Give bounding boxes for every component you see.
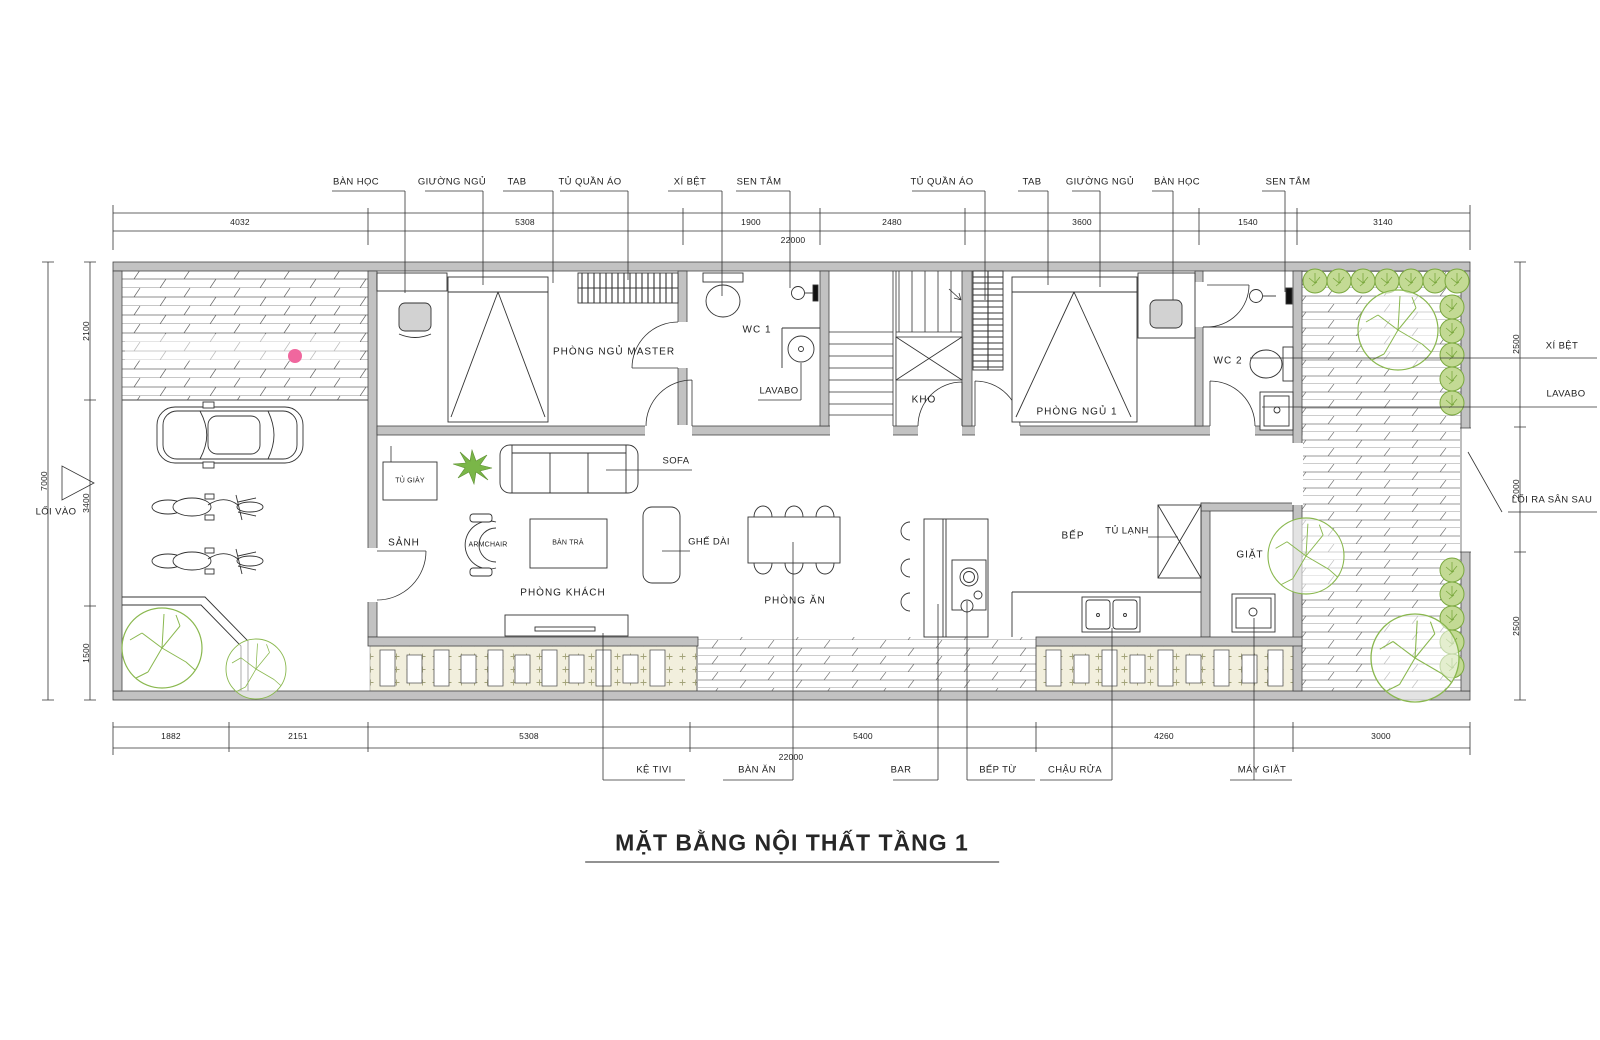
dim-top-3: 1900: [741, 217, 761, 227]
label-sofa: SOFA: [663, 456, 690, 467]
stepping-stones-right: [1046, 650, 1283, 686]
label-coffee-table: BÀN TRÀ: [552, 540, 584, 547]
room-kitchen: BẾP: [1061, 531, 1084, 542]
callout-bar: BAR: [891, 765, 912, 776]
dim-bottom-total: 22000: [779, 752, 804, 762]
room-wc1: WC 1: [743, 325, 772, 336]
dim-top-6: 1540: [1238, 217, 1258, 227]
shower-wc2: [1250, 290, 1263, 303]
wall-laundry-top: [1201, 503, 1293, 511]
room-master-bedroom: PHÒNG NGỦ MASTER: [553, 347, 675, 358]
callout-desk-right: BÀN HỌC: [1154, 177, 1200, 188]
room-wc2: WC 2: [1214, 356, 1243, 367]
callout-induction-hob: BẾP TỪ: [979, 765, 1017, 776]
callout-lavabo-wc2: LAVABO: [1546, 389, 1585, 400]
wall-living-south: [368, 637, 698, 646]
wall-left: [113, 271, 122, 691]
callout-back-exit: LỐI RA SÂN SAU: [1512, 495, 1593, 506]
label-lavabo-wc1: LAVABO: [759, 386, 798, 397]
label-armchair: ARMCHAIR: [469, 542, 508, 549]
dim-right-1: 2500: [1511, 334, 1521, 354]
bed-bedroom1: [1012, 277, 1137, 422]
chair-master: [399, 303, 431, 331]
dim-top-1: 4032: [230, 217, 250, 227]
bar-stools: [901, 522, 910, 611]
callout-sink: CHẬU RỬA: [1048, 765, 1102, 776]
wall-wc1-stairs: [820, 271, 829, 426]
wall-laundry-left: [1201, 503, 1210, 637]
callout-dining-table: BÀN ĂN: [738, 765, 776, 776]
dim-top-2: 5308: [515, 217, 535, 227]
dim-bottom-3: 5308: [519, 731, 539, 741]
bar-island: [901, 519, 988, 637]
door-wc1: [632, 322, 678, 368]
shower-wc1: [792, 285, 819, 301]
dim-left-1: 2100: [81, 321, 91, 341]
tv-shelf: [505, 615, 628, 636]
room-living: PHÒNG KHÁCH: [520, 588, 605, 599]
callout-tab-right: TAB: [1023, 177, 1042, 188]
label-shoe-cabinet: TỦ GIÀY: [395, 478, 424, 485]
callout-washing-machine: MÁY GIẶT: [1238, 765, 1286, 776]
callout-bed-right: GIƯỜNG NGỦ: [1066, 177, 1134, 188]
washing-machine: [1232, 594, 1275, 632]
dim-left-3: 1500: [81, 643, 91, 663]
motorbike-2: [152, 548, 263, 574]
dim-bottom-5: 4260: [1154, 731, 1174, 741]
chair-bedroom1: [1150, 300, 1182, 328]
drawing-title: MẶT BẰNG NỘI THẤT TẦNG 1: [585, 830, 999, 863]
bed-master: [448, 277, 548, 422]
callout-shower-right: SEN TẮM: [1266, 177, 1311, 188]
callout-wardrobe-left: TỦ QUẦN ÁO: [558, 177, 621, 188]
dim-top-4: 2480: [882, 217, 902, 227]
motorbike-1: [152, 494, 263, 520]
dim-top-5: 3600: [1072, 217, 1092, 227]
door-wc2-lower: [1210, 381, 1255, 426]
door-hall: [377, 551, 426, 600]
dining-wood-strip: [698, 637, 1036, 691]
toilet-wc2-bowl: [1250, 350, 1282, 378]
dim-bottom-1: 1882: [161, 731, 181, 741]
toilet-wc2-tank: [1283, 347, 1293, 381]
room-hall: SẢNH: [388, 538, 420, 549]
plant-living: [453, 450, 492, 484]
dining-set: [748, 506, 840, 574]
staircase: [829, 271, 962, 426]
car-symbol: [157, 402, 303, 468]
callout-bed-left: GIƯỜNG NGỦ: [418, 177, 486, 188]
callout-entrance: LỐI VÀO: [36, 507, 77, 518]
watermark: [125, 334, 360, 363]
room-laundry: GIẶT: [1236, 550, 1263, 561]
callout-shower-left: SEN TẮM: [737, 177, 782, 188]
big-tree-garage-2: [226, 639, 286, 699]
big-tree-garden-2: [1268, 518, 1344, 594]
door-wc2-upper: [1207, 285, 1249, 327]
floor-plan-drawing: [0, 0, 1600, 1040]
callout-toilet-left: XÍ BỆT: [674, 177, 707, 188]
bench-seat: [643, 507, 680, 583]
callout-wardrobe-right: TỦ QUẦN ÁO: [910, 177, 973, 188]
label-fridge: TỦ LẠNH: [1105, 526, 1148, 537]
room-dining: PHÒNG ĂN: [764, 596, 825, 607]
big-tree-garage-1: [122, 608, 202, 688]
floor-plan-page: BÀN HỌC GIƯỜNG NGỦ TAB TỦ QUẦN ÁO XÍ BỆT…: [0, 0, 1600, 1040]
big-tree-garden-3: [1371, 614, 1459, 702]
callout-tab-left: TAB: [508, 177, 527, 188]
desk-master: [377, 273, 447, 291]
callout-toilet-wc2: XÍ BỆT: [1546, 341, 1579, 352]
callout-desk-left: BÀN HỌC: [333, 177, 379, 188]
room-bedroom1: PHÒNG NGỦ 1: [1036, 407, 1117, 418]
dim-left-2: 3400: [81, 493, 91, 513]
dim-top-7: 3140: [1373, 217, 1393, 227]
fridge-box: [1158, 505, 1201, 578]
dim-bottom-4: 5400: [853, 731, 873, 741]
dim-bottom-6: 3000: [1371, 731, 1391, 741]
wall-stairs-bedroom1: [962, 271, 972, 426]
label-bench: GHẾ DÀI: [688, 537, 730, 548]
sofa: [500, 445, 638, 493]
dim-left-total: 7000: [39, 471, 49, 491]
dim-bottom-2: 2151: [288, 731, 308, 741]
wardrobe-bedroom1: [973, 271, 1003, 370]
watermark-dot: [288, 349, 302, 363]
toilet-wc1: [703, 273, 743, 317]
kitchen-sink: [1082, 597, 1140, 632]
dim-right-3: 2500: [1511, 616, 1521, 636]
callout-tv-shelf: KỆ TIVI: [636, 765, 671, 776]
lavabo-wc1: [782, 328, 820, 368]
dim-top-total: 22000: [781, 235, 806, 245]
wall-top: [113, 262, 1470, 271]
room-storage: KHO: [912, 395, 937, 406]
wall-bottom: [113, 691, 1470, 700]
chair-master-back: [399, 334, 431, 338]
wall-kitchen-south: [1036, 637, 1302, 646]
